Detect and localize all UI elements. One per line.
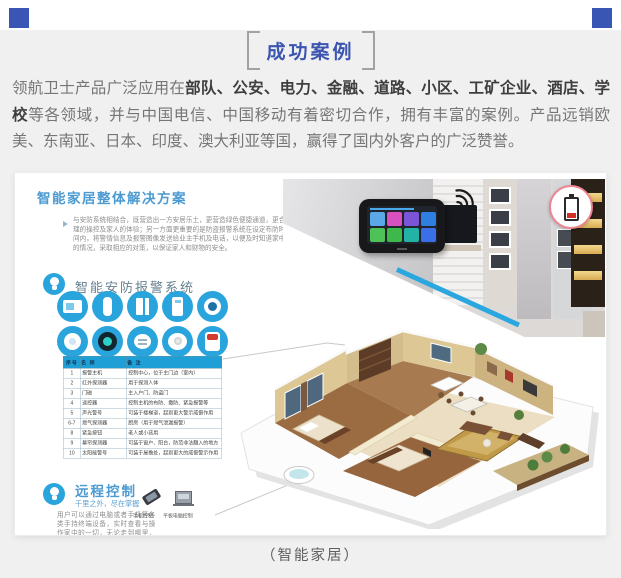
cell-note: 可装于屋檐处，起到更大的威慑警示作用	[126, 448, 221, 458]
intro-lead: 领航卫士产品广泛应用在	[12, 80, 185, 97]
cell-name: 遥控器	[80, 398, 126, 408]
cell-no: 9	[63, 438, 80, 448]
device-table: 序号 名 称 备 注 1 报警主机 控制中心，位于主门边（室内）	[63, 356, 222, 459]
intro-paragraph: 领航卫士产品广泛应用在部队、公安、电力、金融、道路、小区、工矿企业、酒店、学校等…	[12, 76, 610, 156]
cell-note: 控制中心，位于主门边（室内）	[126, 368, 221, 378]
security-device-icon	[197, 326, 228, 357]
security-device-icon	[57, 291, 88, 322]
cell-no: 1	[63, 368, 80, 378]
laptop-label-wrap: 平板电脑控制	[163, 512, 223, 520]
remote-subtitle: 千里之外，尽在掌握	[75, 498, 175, 508]
table-row: 1 报警主机 控制中心，位于主门边（室内）	[63, 368, 222, 378]
table-row: 3 门磁 主入户门、防盗门	[63, 388, 222, 398]
phone-control-label: 手机控制	[133, 512, 156, 519]
cell-name: 燃气探测器	[80, 418, 126, 428]
col-header-note: 备 注	[126, 356, 221, 368]
cell-note: 老人或小孩用	[126, 428, 221, 438]
cell-note: 可装于窗户、阳台，防范非法翻入的地方	[126, 438, 221, 448]
cell-note: 厨房（用于燃气泄漏报警）	[126, 418, 221, 428]
security-device-grid	[57, 291, 237, 357]
table-row: 4 遥控器 控制主机的布防、撤防、紧急报警等	[63, 398, 222, 408]
security-device-icon	[127, 291, 158, 322]
cell-name: 幕帘探测器	[80, 438, 126, 448]
table-row: 2 红外探测器 用于探测人体	[63, 378, 222, 388]
device-table-wrap: 序号 名 称 备 注 1 报警主机 控制中心，位于主门边（室内）	[63, 356, 223, 459]
low-battery-icon	[549, 185, 593, 229]
table-row: 9 幕帘探测器 可装于窗户、阳台，防范非法翻入的地方	[63, 438, 222, 448]
shelf-column	[485, 179, 515, 307]
isometric-floorplan	[235, 329, 607, 529]
cell-no: 4	[63, 398, 80, 408]
solution-title: 智能家居整体解决方案	[37, 187, 187, 207]
alarm-control-panel	[359, 199, 445, 253]
wifi-icon	[449, 185, 479, 215]
page-title: 成功案例	[266, 42, 354, 63]
top-band	[0, 0, 621, 30]
remote-subtitle-wrap: 千里之外，尽在掌握	[75, 498, 175, 508]
security-device-icon	[162, 291, 193, 322]
corner-square-right	[592, 8, 612, 28]
security-device-icon	[57, 326, 88, 357]
brochure-image-card: 智能家居整体解决方案 与安防系统相结合，既营造出一方安居乐土，更营造绿色便捷通道…	[14, 172, 607, 536]
cell-note: 主入户门、防盗门	[126, 388, 221, 398]
table-row: 10 太阳能警号 可装于屋檐处，起到更大的威慑警示作用	[63, 448, 222, 458]
laptop-icon	[175, 491, 192, 504]
cell-name: 红外探测器	[80, 378, 126, 388]
cell-name: 报警主机	[80, 368, 126, 378]
panel-touchscreen	[367, 206, 437, 244]
alarm-panel-photo	[283, 179, 605, 337]
bracket-left	[246, 31, 259, 70]
table-row: 5 声光警号 可装于楼梯道，起到更大警示威慑作用	[63, 408, 222, 418]
panel-home-button	[397, 248, 407, 250]
security-device-icon	[197, 291, 228, 322]
col-header-name: 名 称	[80, 356, 126, 368]
cell-note: 可装于楼梯道，起到更大警示威慑作用	[126, 408, 221, 418]
security-device-icon	[162, 326, 193, 357]
security-device-icon	[127, 326, 158, 357]
tablet-control-label: 平板电脑控制	[163, 512, 196, 519]
remote-section-bulb-icon	[43, 483, 65, 505]
table-header-row: 序号 名 称 备 注	[63, 356, 222, 368]
cell-name: 太阳能警号	[80, 448, 126, 458]
section-title-badge: 成功案例	[246, 31, 374, 70]
cell-no: 2	[63, 378, 80, 388]
cell-no: 3	[63, 388, 80, 398]
cell-name: 紧急按钮	[80, 428, 126, 438]
intro-rest: 等各领域，并与中国电信、中国移动有着密切合作，拥有丰富的案例。产品远销欧美、东南…	[12, 107, 610, 151]
security-device-icon	[92, 291, 123, 322]
hallway-opening	[517, 179, 551, 319]
table-row: 6-7 燃气探测器 厨房（用于燃气泄漏报警）	[63, 418, 222, 428]
cell-no: 8	[63, 428, 80, 438]
cell-note: 控制主机的布防、撤防、紧急报警等	[126, 398, 221, 408]
cell-no: 10	[63, 448, 80, 458]
cell-name: 声光警号	[80, 408, 126, 418]
solution-intro: 与安防系统相结合，既营造出一方安居乐土，更营造绿色便捷通道，更合理的操控及家人的…	[73, 216, 285, 258]
solution-intro-text: 与安防系统相结合，既营造出一方安居乐土，更营造绿色便捷通道，更合理的操控及家人的…	[73, 216, 285, 253]
security-device-icon	[92, 326, 123, 357]
bullet-icon	[63, 221, 68, 227]
corner-square-left	[9, 8, 29, 28]
cell-note: 用于探测人体	[126, 378, 221, 388]
cell-no: 6-7	[63, 418, 80, 428]
article-page: 成功案例 领航卫士产品广泛应用在部队、公安、电力、金融、道路、小区、工矿企业、酒…	[0, 0, 621, 578]
table-row: 8 紧急按钮 老人或小孩用	[63, 428, 222, 438]
bracket-right	[362, 31, 375, 70]
cell-name: 门磁	[80, 388, 126, 398]
remote-title: 远程控制	[75, 480, 137, 500]
image-caption: （智能家居）	[0, 544, 621, 565]
cell-no: 5	[63, 408, 80, 418]
col-header-no: 序号	[63, 356, 80, 368]
